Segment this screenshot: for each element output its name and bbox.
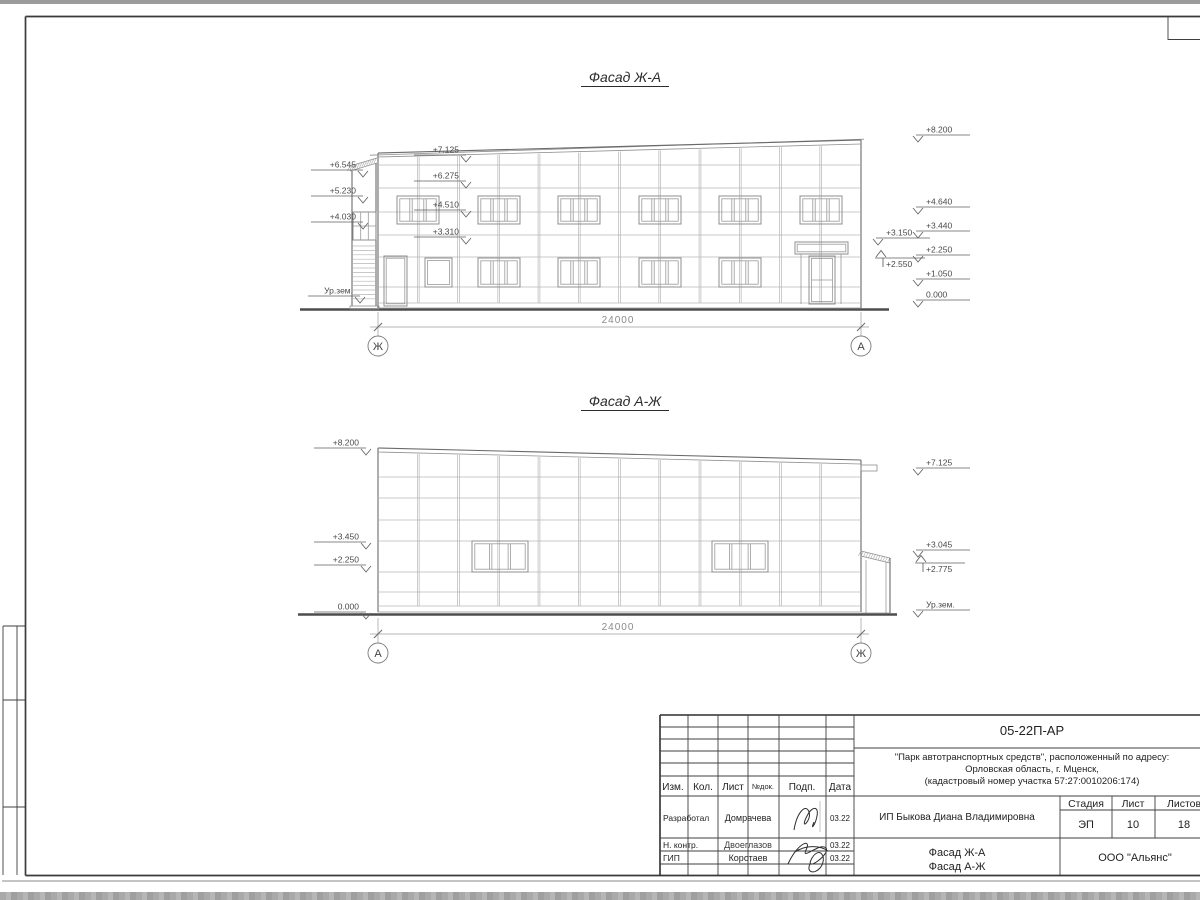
elevation-mark: +5.230 xyxy=(311,186,368,204)
dimension-label: 24000 xyxy=(602,315,635,326)
window xyxy=(425,258,452,287)
signature xyxy=(794,808,817,830)
door xyxy=(384,256,407,306)
elevation-mark: +3.450 xyxy=(314,532,371,550)
elevation-value: 0.000 xyxy=(338,602,360,612)
roof-hatch xyxy=(887,558,890,563)
axis-letter: Ж xyxy=(373,341,383,353)
mark-arrow xyxy=(355,297,365,303)
mark-arrow xyxy=(358,197,368,203)
roof-stub xyxy=(861,465,877,471)
elevation-mark: 0.000 xyxy=(913,290,970,308)
roof-hatch xyxy=(873,554,876,559)
window-frame xyxy=(481,199,517,221)
tb-client: ИП Быкова Диана Владимировна xyxy=(879,812,1035,823)
corner-box xyxy=(1168,17,1200,40)
window xyxy=(478,258,520,287)
elevation-mark: +2.250 xyxy=(913,245,970,263)
window-frame xyxy=(715,544,765,569)
elevation-value: +4.030 xyxy=(330,212,357,222)
tb-role: Разработал xyxy=(663,813,709,823)
elevation-value: +7.125 xyxy=(926,458,953,468)
window xyxy=(719,258,761,287)
tb-sheets-header: Листов xyxy=(1167,798,1200,810)
elevation-value: +7.125 xyxy=(433,145,460,155)
elevation-value: +5.230 xyxy=(330,186,357,196)
tb-sheet-title: Фасад А-Ж xyxy=(929,861,986,873)
window-frame xyxy=(803,199,839,221)
elevation-mark: +4.510 xyxy=(414,200,471,218)
mark-arrow xyxy=(361,543,371,549)
tb-role: ГИП xyxy=(663,853,680,863)
drawing-sheet: Фасад Ж-А Фасад А-Ж +7.125+6.545+6.275+5… xyxy=(0,0,1200,900)
dimension-label: 24000 xyxy=(602,622,635,633)
roof-hatch xyxy=(868,553,871,558)
tb-sheet-header: Лист xyxy=(1122,798,1145,810)
tb-col-podp: Подп. xyxy=(789,782,816,793)
elevation-value: +6.545 xyxy=(330,160,357,170)
elevation-value: +2.550 xyxy=(886,259,913,269)
elevation-value: +3.440 xyxy=(926,221,953,231)
elevation-value: +2.250 xyxy=(926,245,953,255)
elevation-value: Ур.зем. xyxy=(324,286,353,296)
facade-bottom-title: Фасад А-Ж xyxy=(589,393,662,409)
tb-name: Коротаев xyxy=(729,853,768,863)
facade-top-drawing xyxy=(300,139,889,309)
elevation-mark: 0.000 xyxy=(314,602,371,620)
roof-hatch xyxy=(866,553,869,558)
elevation-value: +8.200 xyxy=(926,125,953,135)
window-frame xyxy=(642,261,678,284)
window xyxy=(558,196,600,224)
tb-sheet-value: 10 xyxy=(1127,819,1139,831)
window xyxy=(639,258,681,287)
tb-name: Домрачева xyxy=(725,813,772,823)
mark-arrow xyxy=(361,566,371,572)
roof-hatch xyxy=(870,554,873,559)
window-frame xyxy=(642,199,678,221)
tb-role: Н. контр. xyxy=(663,840,698,850)
roof-hatch xyxy=(863,552,866,557)
tb-stage-value: ЭП xyxy=(1078,819,1094,831)
roof-hatch xyxy=(882,557,885,562)
roof-hatch xyxy=(880,556,883,561)
tb-description-line: (кадастровый номер участка 57:27:0010206… xyxy=(925,776,1140,787)
mark-arrow xyxy=(461,182,471,188)
window-frame xyxy=(561,199,597,221)
window xyxy=(719,196,761,224)
elevation-value: Ур.зем. xyxy=(926,600,955,610)
roof-hatch xyxy=(885,557,888,562)
tb-description-line: Орловская область, г. Мценск, xyxy=(965,764,1099,775)
elevation-value: +2.775 xyxy=(926,564,953,574)
window-frame xyxy=(722,199,758,221)
mark-arrow xyxy=(876,251,886,258)
elevation-value: 0.000 xyxy=(926,290,948,300)
elevation-value: +3.450 xyxy=(333,532,360,542)
elevation-mark: +4.640 xyxy=(913,197,970,215)
mark-arrow xyxy=(913,208,923,214)
window-frame xyxy=(428,261,450,285)
axis-letter: А xyxy=(374,648,382,660)
mark-arrow xyxy=(361,449,371,455)
mark-arrow xyxy=(461,238,471,244)
elevation-value: +3.150 xyxy=(886,228,913,238)
tb-date: 03.22 xyxy=(830,854,851,863)
drawing-canvas: Фасад Ж-А Фасад А-Ж +7.125+6.545+6.275+5… xyxy=(0,0,1200,900)
tb-document-code: 05-22П-АР xyxy=(1000,723,1064,738)
facade-top-dimension: 24000 Ж А xyxy=(368,312,871,356)
elevation-value: +2.250 xyxy=(333,555,360,565)
elevation-mark: +8.200 xyxy=(913,125,970,143)
elevation-value: +3.045 xyxy=(926,540,953,550)
tb-name: Двоеглазов xyxy=(724,840,772,850)
elevation-value: +4.510 xyxy=(433,200,460,210)
window xyxy=(478,196,520,224)
elevation-mark: +2.250 xyxy=(314,555,371,573)
elevation-mark: +6.275 xyxy=(414,171,471,189)
elevation-mark: +3.045 xyxy=(913,540,970,558)
mark-arrow xyxy=(913,280,923,286)
tb-col-izm: Изм. xyxy=(662,782,683,793)
left-margin-stamp xyxy=(3,626,25,875)
mark-arrow xyxy=(913,136,923,142)
elevation-mark: +8.200 xyxy=(314,438,371,456)
elevation-value: +6.275 xyxy=(433,171,460,181)
window-frame xyxy=(561,261,597,284)
elevation-value: +3.310 xyxy=(433,227,460,237)
elevation-value: +1.050 xyxy=(926,269,953,279)
facade-top-title: Фасад Ж-А xyxy=(589,69,661,85)
elevation-value: +8.200 xyxy=(333,438,360,448)
elevation-value: +4.640 xyxy=(926,197,953,207)
door-leaf xyxy=(386,258,405,304)
tb-col-ndok: №док. xyxy=(752,782,774,791)
title-block: Изм. Кол. Лист №док. Подп. Дата Разработ… xyxy=(660,715,1200,876)
axis-letter: А xyxy=(857,341,865,353)
elevation-mark: +3.150 xyxy=(873,228,930,246)
elevation-mark: +1.050 xyxy=(913,269,970,287)
mark-arrow xyxy=(873,239,883,245)
tb-col-list: Лист xyxy=(722,782,744,793)
axis-letter: Ж xyxy=(856,648,866,660)
signature xyxy=(788,843,828,872)
window xyxy=(558,258,600,287)
facade-bottom-drawing xyxy=(298,448,897,615)
tb-sheet-title: Фасад Ж-А xyxy=(929,847,986,859)
tb-sheets-value: 18 xyxy=(1178,819,1190,831)
mark-arrow xyxy=(358,171,368,177)
tb-description-line: "Парк автотранспортных средств", располо… xyxy=(895,752,1170,763)
elevation-mark: +2.775 xyxy=(915,556,965,575)
tb-stage-header: Стадия xyxy=(1068,798,1104,810)
mark-arrow xyxy=(913,469,923,475)
mark-arrow xyxy=(913,301,923,307)
window-frame xyxy=(722,261,758,284)
window xyxy=(712,541,768,572)
tb-col-kol: Кол. xyxy=(693,782,713,793)
facade-bottom-dimension: 24000 А Ж xyxy=(368,618,871,663)
tb-date: 03.22 xyxy=(830,841,851,850)
window-frame xyxy=(481,261,517,284)
mark-arrow xyxy=(913,256,923,262)
mark-arrow xyxy=(461,156,471,162)
mark-arrow xyxy=(913,232,923,238)
window xyxy=(639,196,681,224)
window xyxy=(800,196,842,224)
tb-organization: ООО "Альянс" xyxy=(1098,852,1172,864)
elevation-mark: +2.550 xyxy=(875,251,925,270)
tb-col-data: Дата xyxy=(829,782,852,793)
elevation-mark: Ур.зем. xyxy=(913,600,970,618)
mark-arrow xyxy=(913,611,923,617)
roof-hatch xyxy=(875,555,878,560)
elevation-mark: +3.440 xyxy=(913,221,970,239)
tb-date: 03.22 xyxy=(830,814,851,823)
roof-hatch xyxy=(878,556,881,561)
elevation-mark: +7.125 xyxy=(913,458,970,476)
